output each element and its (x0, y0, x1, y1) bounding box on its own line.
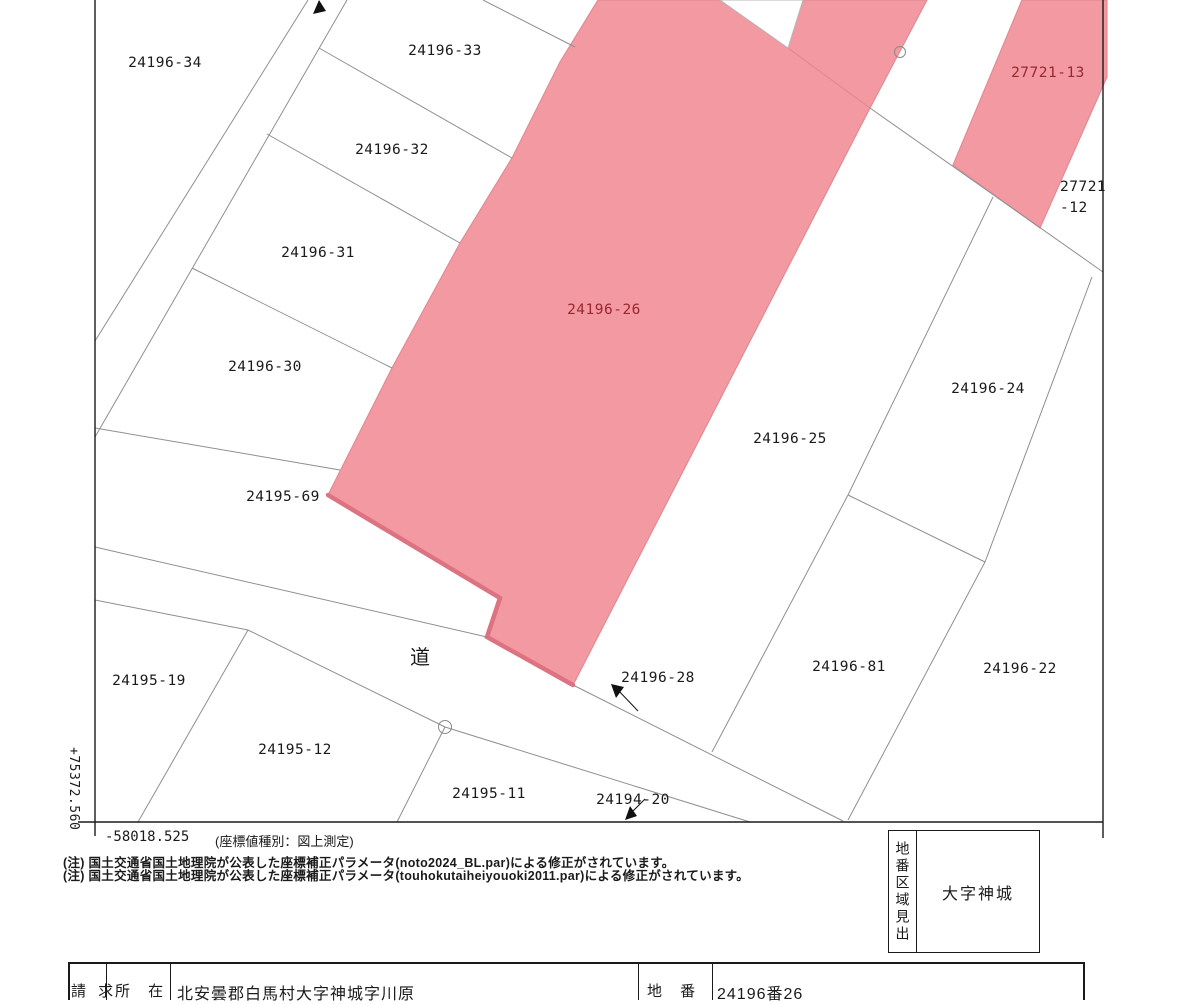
boundary-road-top (95, 547, 487, 637)
road-label: 道 (410, 645, 430, 669)
district-value-cell: 大字神城 (917, 831, 1039, 952)
cadastral-map-page: { "colors": { "highlight_fill": "#F399A1… (0, 0, 1200, 1000)
location-value: 北安曇郡白馬村大字神城字川原 (177, 980, 415, 1004)
boundary-31-30 (192, 268, 392, 368)
correction-note-2: (注) 国土交通省国土地理院が公表した座標補正パラメータ(touhokutaih… (63, 865, 749, 884)
parcel-label-24195-69: 24195-69 (246, 489, 320, 505)
arrow-24196-28-head-icon (611, 684, 624, 698)
table-line-top (68, 962, 1083, 964)
parcel-24196-26-shape (328, 0, 870, 685)
parcel-label-24196-31: 24196-31 (281, 245, 355, 261)
district-value: 大字神城 (942, 880, 1014, 904)
parcel-label-27721-13: 27721-13 (1011, 65, 1085, 81)
district-heading-label: 地番区域見出 (893, 841, 913, 943)
table-line-v1 (68, 962, 70, 1000)
y-axis-coordinate: +75372.560 (66, 747, 81, 823)
parcel-label-24196-34: 24196-34 (128, 55, 202, 71)
boundary-81-22 (848, 562, 985, 820)
parcel-label-24196-26: 24196-26 (567, 302, 641, 318)
parcel-label-24196-32: 24196-32 (355, 142, 429, 158)
boundary-25-24 (848, 197, 993, 495)
parcel-label-24195-12: 24195-12 (258, 742, 332, 758)
table-line-v3 (170, 962, 171, 1000)
boundary-19-12 (138, 630, 248, 822)
parcel-label-24196-24: 24196-24 (951, 381, 1025, 397)
parcel-label-24195-19: 24195-19 (112, 673, 186, 689)
x-axis-coordinate: -58018.525 (105, 829, 189, 845)
parcel-label-24194-20: 24194-20 (596, 792, 670, 808)
boundary-strip-left (95, 0, 308, 341)
table-line-v6 (1083, 962, 1085, 1000)
parcel-number-value: 24196番26 (717, 980, 803, 1004)
boundary-24-22 (985, 277, 1092, 562)
boundary-30-69 (95, 428, 340, 470)
parcel-label-24196-33: 24196-33 (408, 43, 482, 59)
boundary-24-bottom (848, 495, 985, 562)
coordinate-type-note: (座標値種別：図上測定) (215, 831, 354, 850)
request-label: 請 求 (71, 980, 117, 1001)
table-line-v5 (712, 962, 713, 1000)
table-line-v4 (638, 962, 639, 1000)
boundary-25-81 (712, 495, 848, 752)
parcel-label-24195-11: 24195-11 (452, 786, 526, 802)
north-strip-arrow-icon (313, 0, 326, 14)
boundary-12-11 (397, 727, 445, 822)
parcel-label-24196-28: 24196-28 (621, 670, 695, 686)
parcel-label-24196-25: 24196-25 (753, 431, 827, 447)
parcel-number-label: 地 番 (647, 980, 702, 1001)
boundary-33-top (483, 0, 575, 47)
parcel-label-27721-12-line2: -12 (1060, 200, 1088, 216)
district-heading-box: 地番区域見出 大字神城 (888, 830, 1040, 953)
parcel-label-24196-22: 24196-22 (983, 661, 1057, 677)
parcel-label-27721-12-line1: 27721 (1060, 179, 1106, 195)
district-heading-cell: 地番区域見出 (889, 831, 917, 952)
boundary-road-bottom (95, 600, 750, 822)
location-label: 所 在 (115, 980, 170, 1001)
parcel-label-24196-30: 24196-30 (228, 359, 302, 375)
parcel-label-24196-81: 24196-81 (812, 659, 886, 675)
